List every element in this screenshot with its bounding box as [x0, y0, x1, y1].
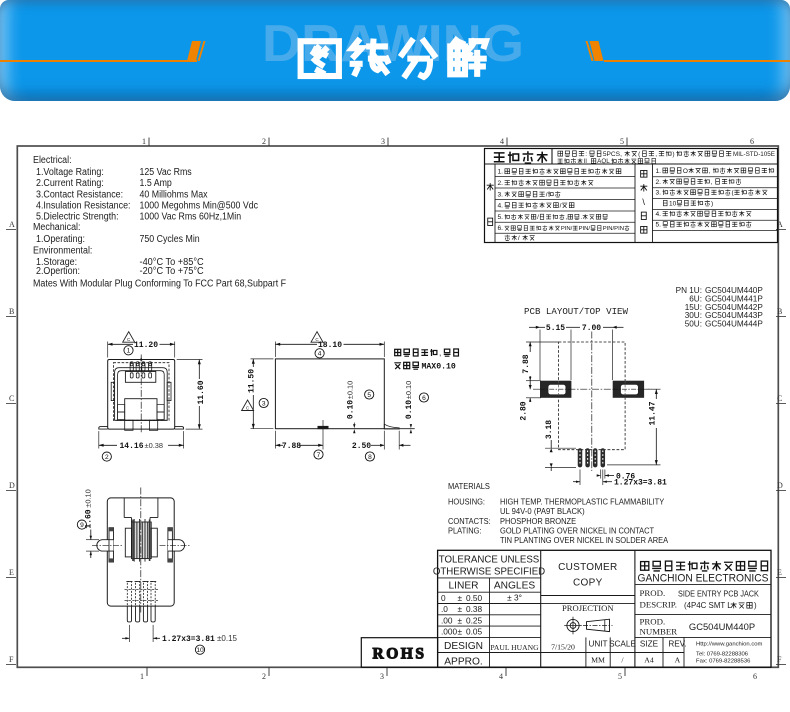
svg-text:3: 3 — [380, 672, 384, 681]
svg-text:PROD.: PROD. — [640, 617, 666, 627]
svg-text:Environmental:: Environmental: — [33, 246, 92, 257]
svg-text:6: 6 — [422, 395, 426, 402]
svg-text:CONTACTS:: CONTACTS: — [448, 516, 491, 526]
svg-text:LINER: LINER — [448, 581, 478, 592]
svg-text:B: B — [9, 307, 14, 316]
svg-text:40 Milliohms Max: 40 Milliohms Max — [140, 190, 208, 201]
svg-text:1.27x3=3.81: 1.27x3=3.81 — [614, 479, 667, 488]
svg-text:): ) — [754, 601, 757, 610]
svg-text:PIN/PIN: PIN/PIN — [603, 226, 624, 232]
svg-text:/: / — [537, 214, 539, 221]
svg-text:.0: .0 — [441, 604, 448, 614]
svg-text:3.: 3. — [498, 192, 504, 199]
svg-text:PCB LAYOUT/TOP VIEW: PCB LAYOUT/TOP VIEW — [524, 306, 628, 317]
svg-text:5.15: 5.15 — [546, 324, 565, 333]
svg-text:,: , — [711, 179, 713, 186]
svg-text:14.16: 14.16 — [119, 442, 143, 451]
svg-text:5: 5 — [367, 392, 371, 399]
svg-text:0.10: 0.10 — [347, 400, 356, 419]
svg-text:-20°C To +75°C: -20°C To +75°C — [140, 266, 204, 277]
svg-text:5.: 5. — [656, 222, 662, 229]
svg-text:0.25: 0.25 — [466, 615, 483, 625]
svg-text:1.: 1. — [656, 168, 662, 175]
svg-text:PHOSPHOR BRONZE: PHOSPHOR BRONZE — [500, 516, 576, 526]
svg-text:10: 10 — [669, 200, 677, 207]
svg-text:Fax: 0769-82288536: Fax: 0769-82288536 — [696, 659, 751, 665]
svg-text:1000 Vac Rms 60Hz,1Min: 1000 Vac Rms 60Hz,1Min — [140, 212, 242, 223]
svg-text:GANCHION ELECTRONICS: GANCHION ELECTRONICS — [638, 573, 769, 585]
svg-text:Mates With Modular Plug Confor: Mates With Modular Plug Conforming To FC… — [33, 279, 286, 290]
svg-text:2: 2 — [105, 454, 109, 461]
svg-text:,: , — [439, 348, 441, 358]
svg-text:/: / — [621, 656, 624, 665]
svg-text:(: ( — [638, 151, 641, 158]
svg-text:C: C — [246, 405, 250, 410]
svg-text:GC504UM444P: GC504UM444P — [705, 320, 763, 329]
svg-text:AQL: AQL — [597, 158, 610, 165]
svg-text:,: , — [655, 151, 657, 158]
svg-text:5: 5 — [618, 672, 622, 681]
svg-text:.000: .000 — [441, 627, 458, 637]
svg-text:2.Opertion:: 2.Opertion: — [36, 266, 80, 277]
svg-text:2.80: 2.80 — [520, 401, 529, 420]
svg-text:OTHERWISE SPECIFIED: OTHERWISE SPECIFIED — [433, 567, 545, 578]
svg-text:±: ± — [458, 604, 463, 614]
svg-text:II: II — [584, 158, 588, 165]
svg-text:A4: A4 — [644, 656, 654, 665]
svg-text:Http://www.ganchion.com: Http://www.ganchion.com — [696, 642, 763, 648]
svg-text:2.: 2. — [498, 180, 504, 187]
svg-text:2: 2 — [262, 137, 266, 146]
svg-text::: : — [585, 151, 587, 158]
svg-text:1.Voltage Rating:: 1.Voltage Rating: — [36, 167, 104, 178]
svg-text:11.20: 11.20 — [134, 341, 158, 350]
svg-text:C: C — [777, 394, 782, 403]
svg-text:7/15/20: 7/15/20 — [551, 643, 575, 652]
svg-text:0.38: 0.38 — [466, 604, 483, 614]
svg-text:4: 4 — [318, 351, 322, 358]
svg-text:A: A — [9, 220, 15, 229]
svg-text:UNIT: UNIT — [588, 639, 607, 648]
svg-text:.00: .00 — [441, 615, 453, 625]
svg-text:7.00: 7.00 — [582, 324, 601, 333]
svg-text:±: ± — [458, 615, 463, 625]
svg-text:APPRO.: APPRO. — [444, 656, 483, 667]
svg-text:2.: 2. — [656, 179, 662, 186]
svg-text:5.: 5. — [498, 214, 504, 221]
svg-text:MAX0.10: MAX0.10 — [421, 363, 455, 372]
svg-text:): ) — [711, 200, 713, 207]
svg-text:1000 Megohms Min@500 Vdc: 1000 Megohms Min@500 Vdc — [140, 201, 259, 212]
svg-text:0.10: 0.10 — [405, 400, 414, 419]
svg-text:125 Vac Rms: 125 Vac Rms — [140, 167, 192, 178]
svg-text:7.88: 7.88 — [282, 442, 301, 451]
svg-text:SIDE ENTRY PCB JACK: SIDE ENTRY PCB JACK — [678, 590, 760, 599]
svg-text:.: . — [580, 214, 582, 221]
svg-text:PROJECTION: PROJECTION — [562, 603, 614, 613]
svg-text:6: 6 — [750, 137, 754, 146]
svg-text:0.05: 0.05 — [466, 627, 483, 637]
svg-text:7: 7 — [317, 452, 321, 459]
svg-text:4.: 4. — [498, 203, 504, 210]
svg-text:DESCRIP.: DESCRIP. — [640, 600, 677, 610]
svg-text:0: 0 — [441, 593, 446, 603]
svg-text:(: ( — [732, 190, 735, 197]
svg-text:1.Operating:: 1.Operating: — [36, 234, 85, 245]
svg-text:8: 8 — [368, 454, 372, 461]
svg-text:1: 1 — [140, 672, 144, 681]
svg-text:MATERIALS: MATERIALS — [448, 481, 490, 491]
svg-text:UL 94V-0 (PA9T BLACK): UL 94V-0 (PA9T BLACK) — [500, 506, 585, 516]
svg-text:TIN PLANTING OVER NICKEL IN SO: TIN PLANTING OVER NICKEL IN SOLDER AREA — [500, 535, 668, 545]
svg-text:/: / — [546, 192, 548, 199]
svg-text:D: D — [777, 481, 783, 490]
svg-text:A: A — [675, 656, 681, 665]
svg-text:6.: 6. — [498, 225, 504, 232]
svg-text:PAUL HUANG: PAUL HUANG — [490, 643, 539, 652]
svg-text:HOUSING:: HOUSING: — [448, 497, 485, 507]
svg-text:D: D — [9, 481, 15, 490]
svg-text:COPY: COPY — [573, 578, 603, 589]
svg-text:ANGLES: ANGLES — [494, 581, 536, 592]
svg-text:750 Cycles Min: 750 Cycles Min — [140, 234, 200, 245]
svg-text:PIN/: PIN/ — [561, 226, 573, 232]
svg-text:±0.10: ±0.10 — [404, 381, 413, 399]
svg-text:HIGH TEMP. THERMOPLASTIC FLAMM: HIGH TEMP. THERMOPLASTIC FLAMMABILITY — [500, 497, 664, 507]
svg-text:,: , — [565, 214, 567, 221]
svg-text:\: \ — [642, 197, 645, 207]
svg-text:5.Dielectric Strength:: 5.Dielectric Strength: — [36, 212, 119, 223]
svg-text:±: ± — [458, 627, 463, 637]
svg-text:3.18: 3.18 — [545, 420, 554, 439]
svg-text:C: C — [127, 337, 131, 342]
svg-text:1: 1 — [142, 137, 146, 146]
svg-text:PROD.: PROD. — [640, 588, 666, 598]
svg-text:ROHS: ROHS — [373, 646, 427, 663]
svg-text:1.: 1. — [498, 169, 504, 176]
svg-text:1: 1 — [127, 348, 131, 355]
svg-text:2.50: 2.50 — [352, 442, 371, 451]
svg-text:GOLD PLATING OVER NICKEL IN CO: GOLD PLATING OVER NICKEL IN CONTACT — [500, 526, 655, 536]
svg-text:0.50: 0.50 — [466, 593, 483, 603]
svg-text:4.Insulation Resistance:: 4.Insulation Resistance: — [36, 201, 131, 212]
svg-text:4.: 4. — [656, 211, 662, 218]
svg-text:(4P4C SMT L: (4P4C SMT L — [684, 601, 732, 610]
svg-text:GC504UM440P: GC504UM440P — [689, 621, 755, 632]
svg-text:4: 4 — [499, 672, 503, 681]
svg-text:±0.15: ±0.15 — [217, 634, 238, 643]
svg-text:Tel: 0769-82288306: Tel: 0769-82288306 — [696, 652, 749, 658]
svg-text:DESIGN: DESIGN — [444, 641, 483, 652]
svg-text:CUSTOMER: CUSTOMER — [558, 562, 617, 573]
svg-text:10: 10 — [196, 647, 204, 654]
svg-text:F: F — [777, 655, 782, 664]
svg-text:C: C — [9, 394, 14, 403]
svg-text:11.50: 11.50 — [248, 369, 257, 393]
svg-text:± 3°: ± 3° — [507, 592, 522, 602]
svg-text:4: 4 — [500, 137, 504, 146]
svg-text:,: , — [709, 168, 711, 175]
svg-text:2: 2 — [262, 672, 266, 681]
svg-text:SCALE: SCALE — [609, 639, 636, 648]
svg-text:1.27x3=3.81: 1.27x3=3.81 — [162, 635, 215, 644]
svg-text:): ) — [672, 151, 674, 158]
svg-text:9: 9 — [80, 522, 84, 529]
svg-text:11.60: 11.60 — [197, 380, 206, 404]
svg-text:O: O — [683, 168, 688, 175]
svg-text:PIN/: PIN/ — [579, 226, 591, 232]
svg-text:5PCS,: 5PCS, — [603, 151, 622, 158]
svg-text:5: 5 — [620, 137, 624, 146]
svg-text:50U:: 50U: — [685, 320, 702, 329]
svg-text:NUMBER: NUMBER — [640, 627, 678, 637]
svg-text:TOLERANCE UNLESS: TOLERANCE UNLESS — [439, 555, 540, 566]
svg-text:±: ± — [458, 593, 463, 603]
svg-text:7.88: 7.88 — [522, 354, 531, 373]
svg-text:/: / — [560, 203, 562, 210]
svg-text:±0.10: ±0.10 — [346, 381, 355, 399]
svg-text:3.: 3. — [656, 190, 662, 197]
svg-text:3: 3 — [381, 137, 385, 146]
svg-text:Mechanical:: Mechanical: — [33, 222, 81, 233]
svg-text:F: F — [9, 655, 14, 664]
svg-text:11.47: 11.47 — [648, 401, 657, 425]
svg-text:SIZE: SIZE — [640, 639, 659, 648]
svg-text:MM: MM — [591, 656, 605, 665]
svg-text:/: / — [518, 235, 520, 242]
svg-text:Electrical:: Electrical: — [33, 155, 72, 166]
svg-text:B: B — [777, 307, 782, 316]
svg-text:3.Contact Resistance:: 3.Contact Resistance: — [36, 190, 123, 201]
svg-text:±0.10: ±0.10 — [84, 489, 93, 507]
svg-text:1.5 Amp: 1.5 Amp — [140, 178, 173, 189]
svg-text:3: 3 — [262, 400, 266, 407]
svg-text:2.Current Rating:: 2.Current Rating: — [36, 178, 104, 189]
svg-text:E: E — [777, 568, 782, 577]
svg-text:REV.: REV. — [668, 639, 686, 648]
svg-text:PLATING:: PLATING: — [448, 526, 482, 536]
svg-text:6: 6 — [753, 672, 757, 681]
svg-text:MIL-STD-105E: MIL-STD-105E — [733, 151, 775, 158]
svg-text:±0.38: ±0.38 — [145, 441, 163, 450]
svg-text:E: E — [9, 568, 14, 577]
